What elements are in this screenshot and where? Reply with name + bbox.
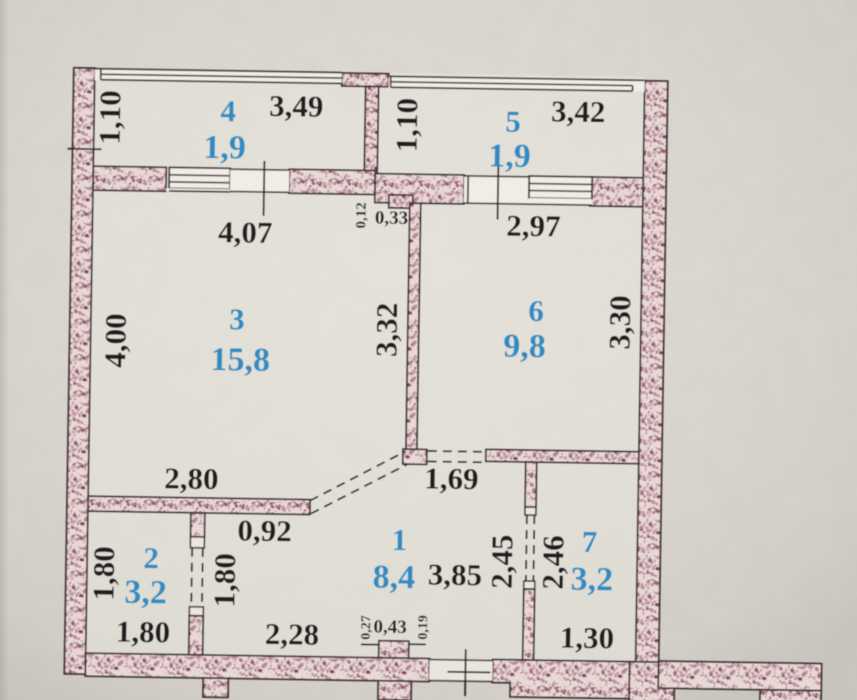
svg-text:7: 7: [581, 524, 597, 559]
svg-text:2: 2: [143, 540, 159, 575]
svg-text:2,46: 2,46: [535, 535, 571, 590]
svg-text:1,80: 1,80: [206, 553, 242, 608]
svg-text:0,92: 0,92: [237, 512, 292, 548]
svg-text:4,00: 4,00: [97, 313, 133, 368]
svg-text:1,9: 1,9: [203, 129, 246, 167]
svg-text:0,27: 0,27: [359, 615, 374, 640]
svg-text:3,2: 3,2: [570, 561, 613, 599]
svg-text:3,2: 3,2: [124, 574, 167, 612]
svg-text:1,10: 1,10: [92, 90, 128, 145]
svg-text:15,8: 15,8: [210, 341, 270, 379]
svg-text:3: 3: [229, 301, 245, 336]
svg-text:1,80: 1,80: [116, 614, 171, 650]
svg-text:2,97: 2,97: [506, 208, 561, 244]
svg-text:0,12: 0,12: [353, 202, 369, 228]
svg-text:0,43: 0,43: [373, 617, 407, 639]
svg-text:4,07: 4,07: [218, 214, 273, 250]
svg-text:9,8: 9,8: [503, 328, 546, 366]
svg-text:5: 5: [505, 104, 521, 139]
svg-text:1,10: 1,10: [389, 98, 425, 153]
svg-text:1,9: 1,9: [488, 137, 531, 175]
svg-text:3,49: 3,49: [269, 88, 324, 124]
svg-text:0,19: 0,19: [416, 615, 431, 640]
svg-text:3,85: 3,85: [428, 556, 483, 592]
svg-text:3,30: 3,30: [602, 295, 638, 350]
svg-text:1,80: 1,80: [86, 546, 122, 601]
svg-text:3,42: 3,42: [551, 93, 606, 129]
svg-text:6: 6: [528, 293, 544, 328]
svg-text:2,80: 2,80: [164, 460, 219, 496]
svg-text:0,33: 0,33: [375, 208, 409, 230]
svg-text:8,4: 8,4: [372, 559, 415, 597]
svg-text:1: 1: [391, 522, 407, 557]
svg-text:3,32: 3,32: [368, 302, 404, 357]
svg-text:4: 4: [220, 93, 236, 128]
svg-text:2,45: 2,45: [484, 534, 520, 589]
svg-text:1,30: 1,30: [560, 620, 615, 656]
svg-text:1,69: 1,69: [424, 460, 479, 496]
svg-text:2,28: 2,28: [265, 616, 320, 652]
